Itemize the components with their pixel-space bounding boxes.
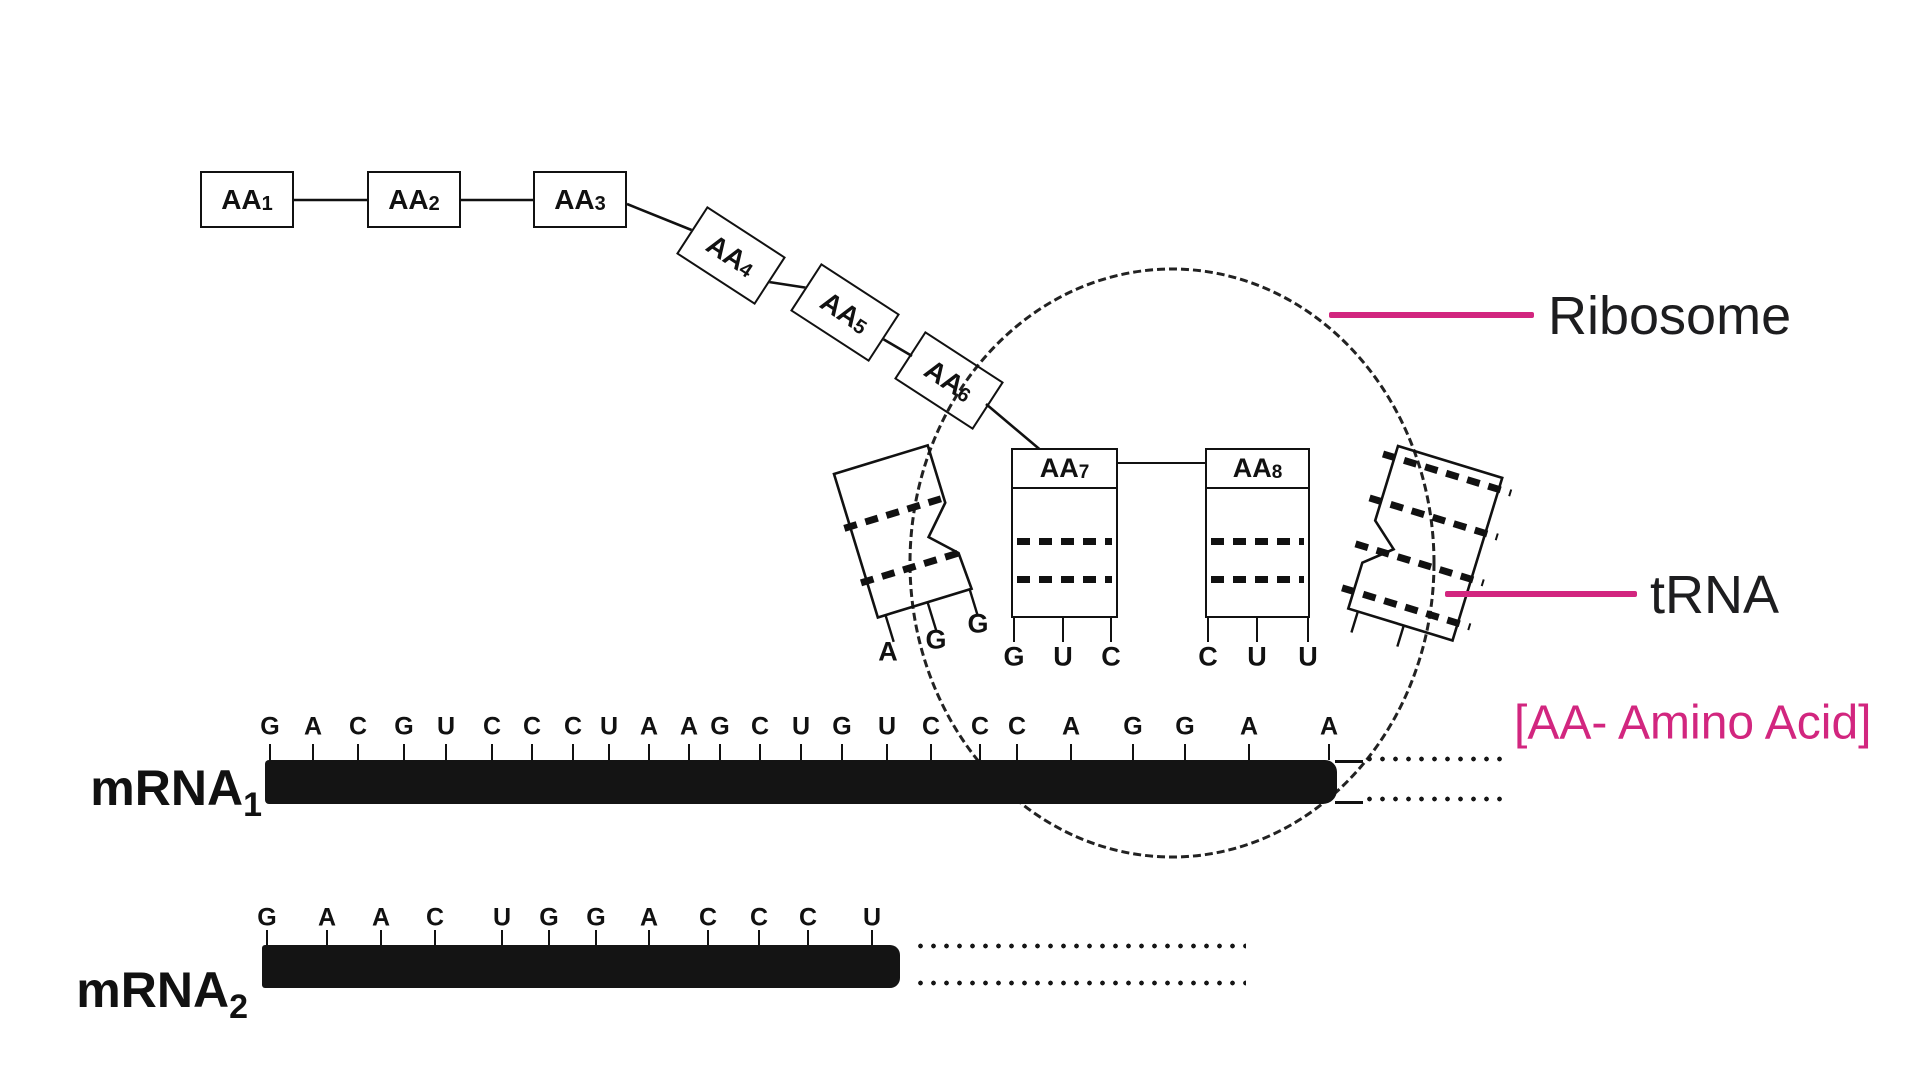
mrna1-base-letter: C: [1008, 713, 1026, 742]
mrna1-base-letter: A: [1062, 713, 1080, 742]
aa-base: AA: [221, 184, 261, 216]
amino-acid-8-label: AA8: [1207, 450, 1308, 489]
anticodon-tick: [1307, 618, 1309, 642]
mrna1-tick: [1132, 744, 1134, 760]
trna-incoming-outline: [1348, 446, 1502, 640]
mrna1-base-letter: A: [640, 713, 658, 742]
mrna2-base-letter: U: [493, 904, 511, 933]
mrna2-base-letter: A: [640, 904, 658, 933]
mrna2-base-letter: A: [372, 904, 390, 933]
trna-leader-line: [1445, 591, 1637, 597]
amino-acid-note: [AA- Amino Acid]: [1514, 696, 1872, 751]
translation-diagram: AA7 AA8 mRNA1 mRNA2 Ribosome tRNA [AA- A…: [0, 0, 1920, 1080]
aa-base: AA: [388, 184, 428, 216]
mrna1-tick: [357, 744, 359, 760]
base-pair-dashes: [1211, 576, 1304, 583]
mrna1-tick: [312, 744, 314, 760]
mrna1-base-letter: C: [349, 713, 367, 742]
mrna1-strand-bar: [265, 760, 1337, 804]
amino-acid-7-label: AA7: [1013, 450, 1116, 489]
anticodon-tick: [1256, 618, 1258, 642]
mrna1-base-letter: U: [600, 713, 618, 742]
mrna1-label-base: mRNA: [90, 760, 243, 816]
aa-sub: 6: [959, 392, 968, 398]
mrna1-tick: [688, 744, 690, 760]
mrna1-tick: [403, 744, 405, 760]
trna-exiting: [828, 445, 982, 649]
anticodon-letter: U: [1053, 642, 1073, 673]
mrna1-tick: [979, 744, 981, 760]
base-pair-dashes: [1017, 576, 1112, 583]
mrna1-base-letter: A: [680, 713, 698, 742]
mrna1-edge-stub: [1335, 801, 1363, 804]
aa-sub: 4: [741, 267, 750, 273]
diagram-linework: [0, 0, 1920, 1080]
mrna2-continuation-dots: [914, 943, 1246, 949]
mrna1-tick: [531, 744, 533, 760]
mrna1-tick: [445, 744, 447, 760]
mrna1-tick: [608, 744, 610, 760]
anticodon-letter: U: [1298, 642, 1318, 673]
base-pair-dashes: [1211, 538, 1304, 545]
mrna1-base-letter: C: [483, 713, 501, 742]
mrna2-base-letter: C: [699, 904, 717, 933]
amino-acid-box-2: AA2: [367, 171, 461, 228]
base-pair-dashes: [1017, 538, 1112, 545]
mrna2-base-letter: C: [426, 904, 444, 933]
anticodon-letter: G: [1003, 642, 1024, 673]
mrna2-base-letter: A: [318, 904, 336, 933]
mrna1-tick: [841, 744, 843, 760]
anticodon-tick: [1110, 618, 1112, 642]
ribosome-label: Ribosome: [1548, 285, 1791, 347]
mrna1-base-letter: G: [1123, 713, 1142, 742]
mrna1-base-letter: A: [1240, 713, 1258, 742]
mrna1-tick: [1248, 744, 1250, 760]
aa-base: AA: [554, 184, 594, 216]
mrna1-tick: [719, 744, 721, 760]
mrna2-base-letter: C: [799, 904, 817, 933]
trna-pairing-dashes: [844, 497, 945, 528]
anticodon-letter: G: [925, 625, 946, 656]
trna-label: tRNA: [1650, 564, 1779, 626]
anticodon-letter: C: [1198, 642, 1218, 673]
mrna2-strand-bar: [262, 945, 900, 988]
mrna1-tick: [800, 744, 802, 760]
trna-pairing-dashes: [1342, 454, 1511, 627]
mrna1-tick: [1016, 744, 1018, 760]
mrna1-base-letter: G: [832, 713, 851, 742]
mrna1-tick: [491, 744, 493, 760]
mrna1-tick: [1070, 744, 1072, 760]
anticodon-tick: [1062, 618, 1064, 642]
mrna1-base-letter: G: [260, 713, 279, 742]
mrna1-base-letter: U: [437, 713, 455, 742]
mrna2-continuation-dots: [914, 980, 1246, 986]
mrna1-continuation-dots: [1363, 756, 1507, 762]
amino-acid-box-3: AA3: [533, 171, 627, 228]
mrna1-continuation-dots: [1363, 796, 1507, 802]
mrna2-label-sub: 2: [229, 988, 248, 1026]
mrna1-base-letter: A: [304, 713, 322, 742]
aa-base: AA: [1233, 453, 1272, 484]
anticodon-tick: [1207, 618, 1209, 642]
mrna1-base-letter: C: [523, 713, 541, 742]
mrna1-tick: [269, 744, 271, 760]
mrna1-base-letter: U: [878, 713, 896, 742]
mrna1-tick: [572, 744, 574, 760]
anticodon-letter: C: [1101, 642, 1121, 673]
mrna1-label-sub: 1: [243, 786, 262, 824]
anticodon-letter: A: [878, 637, 898, 668]
mrna1-base-letter: A: [1320, 713, 1338, 742]
mrna1-base-letter: C: [564, 713, 582, 742]
mrna1-base-letter: C: [751, 713, 769, 742]
mrna1-base-letter: C: [922, 713, 940, 742]
aa-sub: 5: [855, 324, 864, 330]
mrna1-tick: [1328, 744, 1330, 760]
mrna2-base-letter: G: [586, 904, 605, 933]
mrna1-base-letter: G: [394, 713, 413, 742]
mrna2-base-letter: G: [539, 904, 558, 933]
trna-a-site: AA8: [1205, 448, 1310, 618]
mrna1-tick: [648, 744, 650, 760]
trna-p-site: AA7: [1011, 448, 1118, 618]
mrna1-base-letter: G: [710, 713, 729, 742]
mrna1-tick: [930, 744, 932, 760]
anticodon-letter: U: [1247, 642, 1267, 673]
aa-base: AA: [1040, 453, 1079, 484]
mrna2-base-letter: C: [750, 904, 768, 933]
trna-exiting-outline: [834, 445, 972, 617]
anticodon-letter: G: [967, 609, 988, 640]
mrna2-label-base: mRNA: [76, 962, 229, 1018]
anticodon-tick: [1013, 618, 1015, 642]
mrna1-base-letter: C: [971, 713, 989, 742]
mrna1-tick: [759, 744, 761, 760]
mrna1-base-letter: U: [792, 713, 810, 742]
amino-acid-box-1: AA1: [200, 171, 294, 228]
mrna1-tick: [1184, 744, 1186, 760]
mrna2-base-letter: G: [257, 904, 276, 933]
mrna1-base-letter: G: [1175, 713, 1194, 742]
mrna2-label: mRNA2: [70, 961, 248, 1019]
ribosome-leader-line: [1329, 312, 1534, 318]
mrna2-base-letter: U: [863, 904, 881, 933]
mrna1-label: mRNA1: [90, 759, 262, 817]
mrna1-edge-stub: [1335, 760, 1363, 763]
mrna1-tick: [886, 744, 888, 760]
